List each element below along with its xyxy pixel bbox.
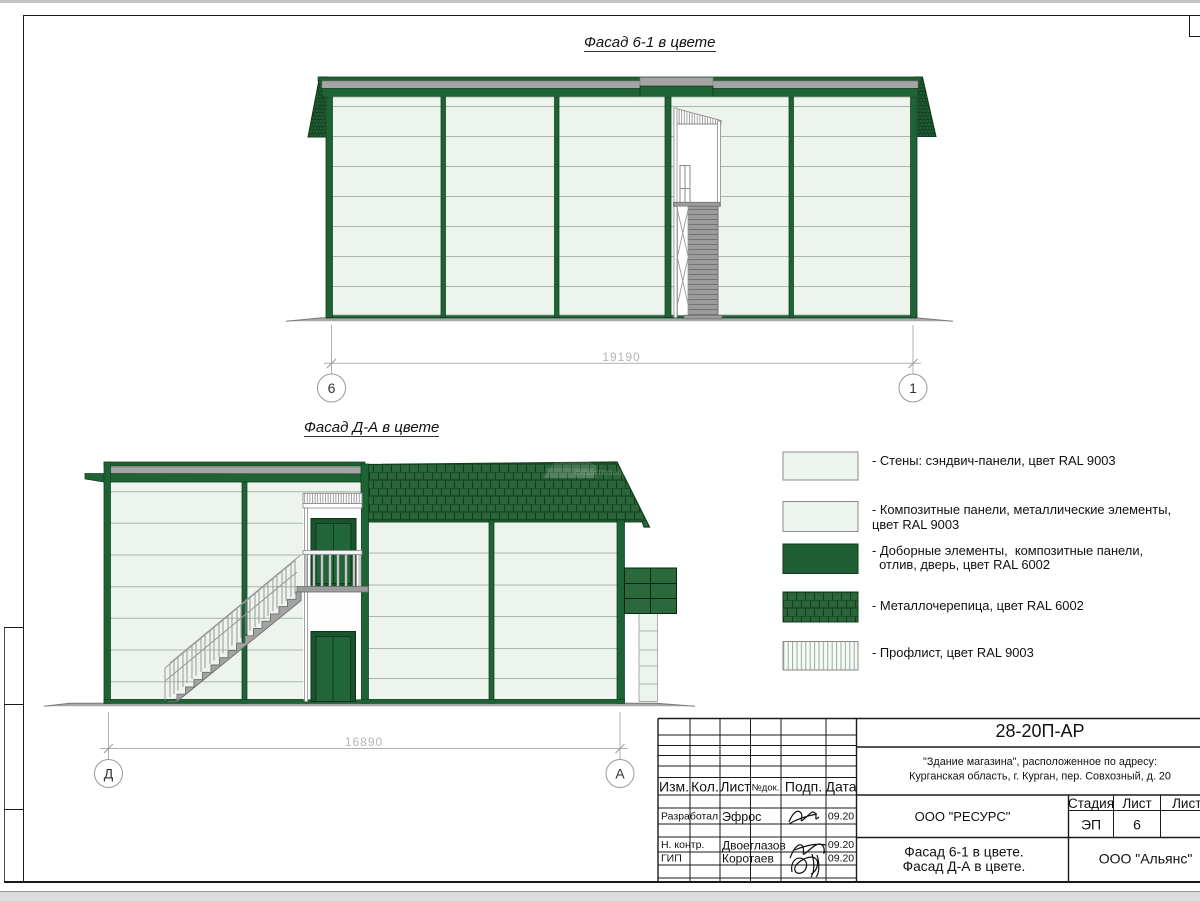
svg-text:строительная: строительная <box>575 467 629 477</box>
svg-text:Разработал: Разработал <box>661 811 718 823</box>
svg-text:Стадия: Стадия <box>1068 796 1114 811</box>
svg-text:1: 1 <box>909 380 917 396</box>
svg-text:Н. контр.: Н. контр. <box>661 839 704 851</box>
svg-text:ГИП: ГИП <box>661 853 682 865</box>
svg-text:Коротаев: Коротаев <box>722 852 774 866</box>
svg-text:Подп.: Подп. <box>785 779 822 795</box>
svg-text:Дата: Дата <box>825 779 856 795</box>
svg-text:Кол.: Кол. <box>691 779 719 795</box>
svg-text:Листов: Листов <box>1172 796 1200 811</box>
svg-text:6: 6 <box>328 380 336 396</box>
svg-text:09.20: 09.20 <box>828 839 854 851</box>
svg-text:19190: 19190 <box>602 350 640 364</box>
svg-text:№док.: №док. <box>752 783 780 794</box>
svg-text:Лист: Лист <box>1122 796 1151 811</box>
svg-text:Фасад Д-А в цвете.: Фасад Д-А в цвете. <box>903 859 1026 874</box>
svg-text:Лист: Лист <box>720 779 751 795</box>
svg-text:"Здание магазина", расположенн: "Здание магазина", расположенное по адре… <box>923 756 1157 768</box>
svg-text:Д: Д <box>104 766 114 782</box>
svg-text:Двоеглазов: Двоеглазов <box>722 839 786 853</box>
svg-text:Курганская область, г. Курган,: Курганская область, г. Курган, пер. Совх… <box>909 770 1171 782</box>
svg-text:09.20: 09.20 <box>828 811 854 823</box>
svg-text:16890: 16890 <box>345 735 383 749</box>
svg-text:28-20П-АР: 28-20П-АР <box>996 721 1085 741</box>
svg-text:А: А <box>615 766 625 782</box>
svg-text:09.20: 09.20 <box>828 853 854 865</box>
svg-text:Эфрос: Эфрос <box>722 810 761 824</box>
svg-text:Фасад 6-1 в цвете.: Фасад 6-1 в цвете. <box>904 845 1024 860</box>
svg-text:ЭП: ЭП <box>1081 817 1101 833</box>
svg-text:Изм.: Изм. <box>659 779 689 795</box>
svg-text:ООО "РЕСУРС": ООО "РЕСУРС" <box>915 809 1011 824</box>
svg-text:6: 6 <box>1133 817 1141 833</box>
svg-text:ООО "Альянс": ООО "Альянс" <box>1099 851 1193 867</box>
